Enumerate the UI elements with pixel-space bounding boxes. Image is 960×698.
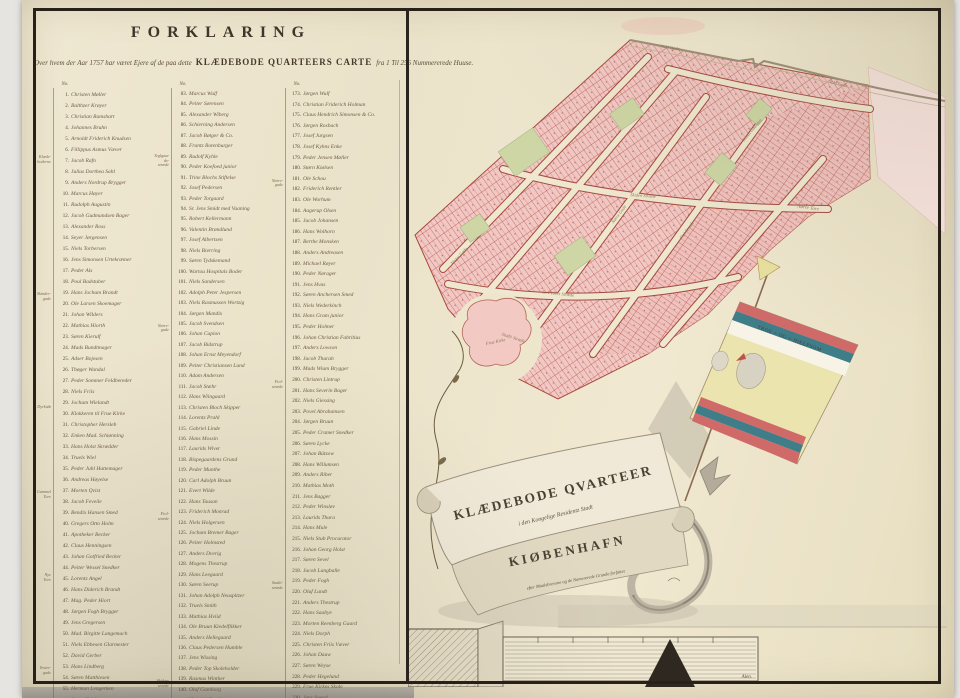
owner-name: Oluf Gamborg bbox=[189, 687, 221, 693]
owner-name: Frue Kirkes Skole bbox=[303, 684, 343, 690]
register-entry: 140.Oluf Gamborg bbox=[174, 684, 264, 694]
house-number: 55. bbox=[56, 686, 69, 693]
scanned-map-sheet: FORKLARING Over hvem der Aar 1757 har væ… bbox=[0, 0, 960, 698]
house-number: 229. bbox=[288, 685, 301, 692]
register-entry: 230.Jens Spend bbox=[288, 692, 398, 698]
owner-name: Herman Lengerken bbox=[71, 686, 114, 692]
sheet-fold-line bbox=[406, 8, 409, 684]
register-entry: 141.Henrich Ferslev bbox=[174, 694, 264, 698]
map-frame-border bbox=[33, 8, 941, 684]
register-entry: 56.Jonas Colding bbox=[56, 693, 150, 698]
